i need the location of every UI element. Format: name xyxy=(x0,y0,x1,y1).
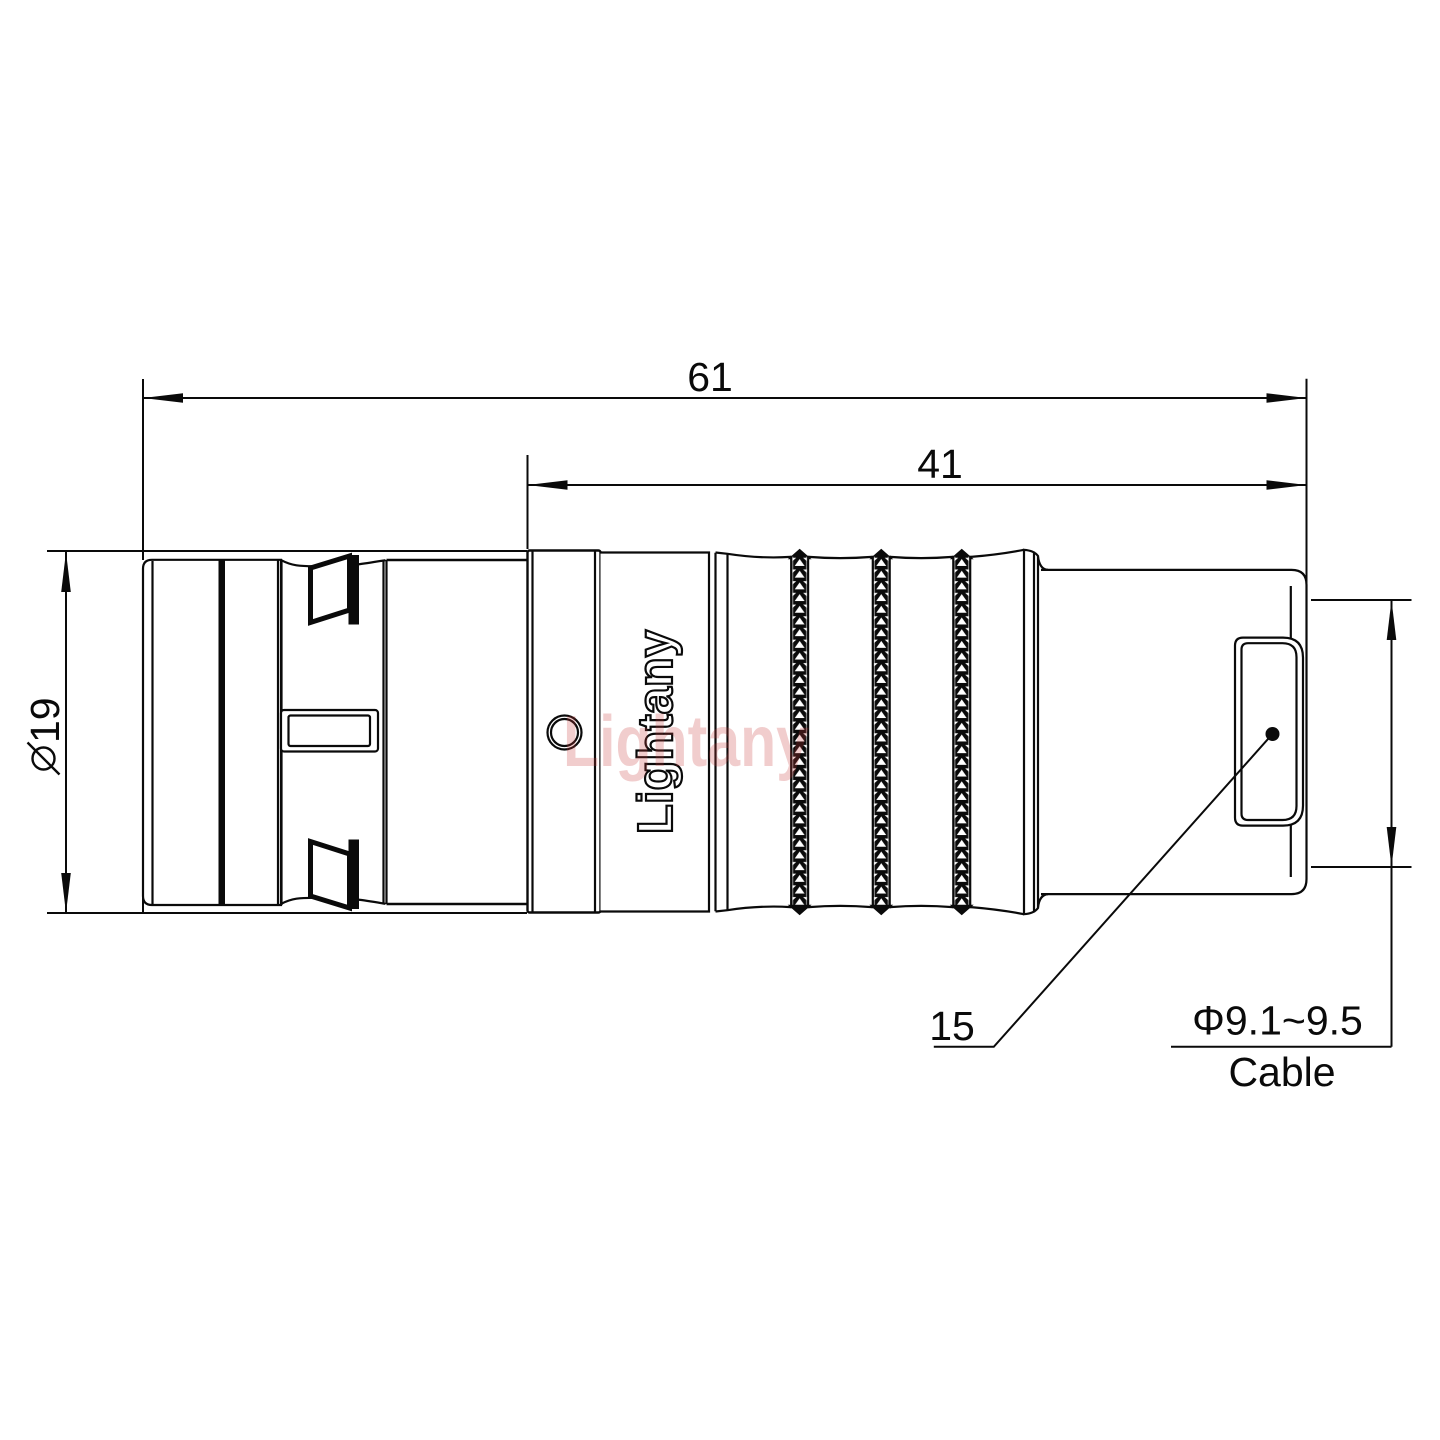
svg-text:Cable: Cable xyxy=(1228,1049,1335,1095)
svg-text:19: 19 xyxy=(22,697,68,743)
svg-text:61: 61 xyxy=(687,354,733,400)
svg-text:15: 15 xyxy=(929,1003,975,1049)
svg-text:Lightany: Lightany xyxy=(563,702,809,782)
svg-text:Φ9.1~9.5: Φ9.1~9.5 xyxy=(1192,998,1363,1044)
svg-text:41: 41 xyxy=(917,441,963,487)
